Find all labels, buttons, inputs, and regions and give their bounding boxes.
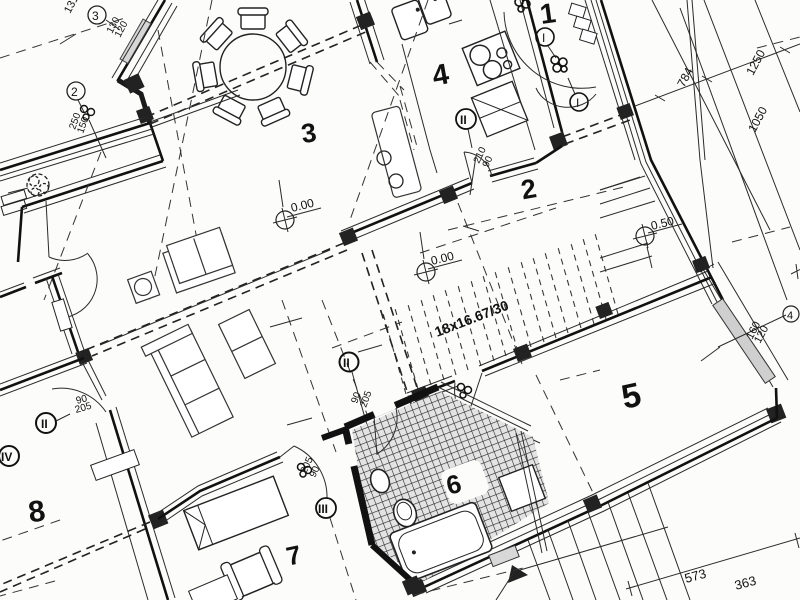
svg-text:4: 4 xyxy=(787,310,793,322)
svg-text:2: 2 xyxy=(71,85,78,99)
svg-text:II: II xyxy=(41,417,48,431)
svg-text:IV: IV xyxy=(1,450,12,464)
svg-text:III: III xyxy=(318,502,328,516)
svg-text:II: II xyxy=(343,356,350,370)
svg-text:3: 3 xyxy=(92,9,99,23)
svg-text:I: I xyxy=(576,96,579,110)
svg-text:I: I xyxy=(542,31,545,45)
svg-text:II: II xyxy=(460,113,467,127)
